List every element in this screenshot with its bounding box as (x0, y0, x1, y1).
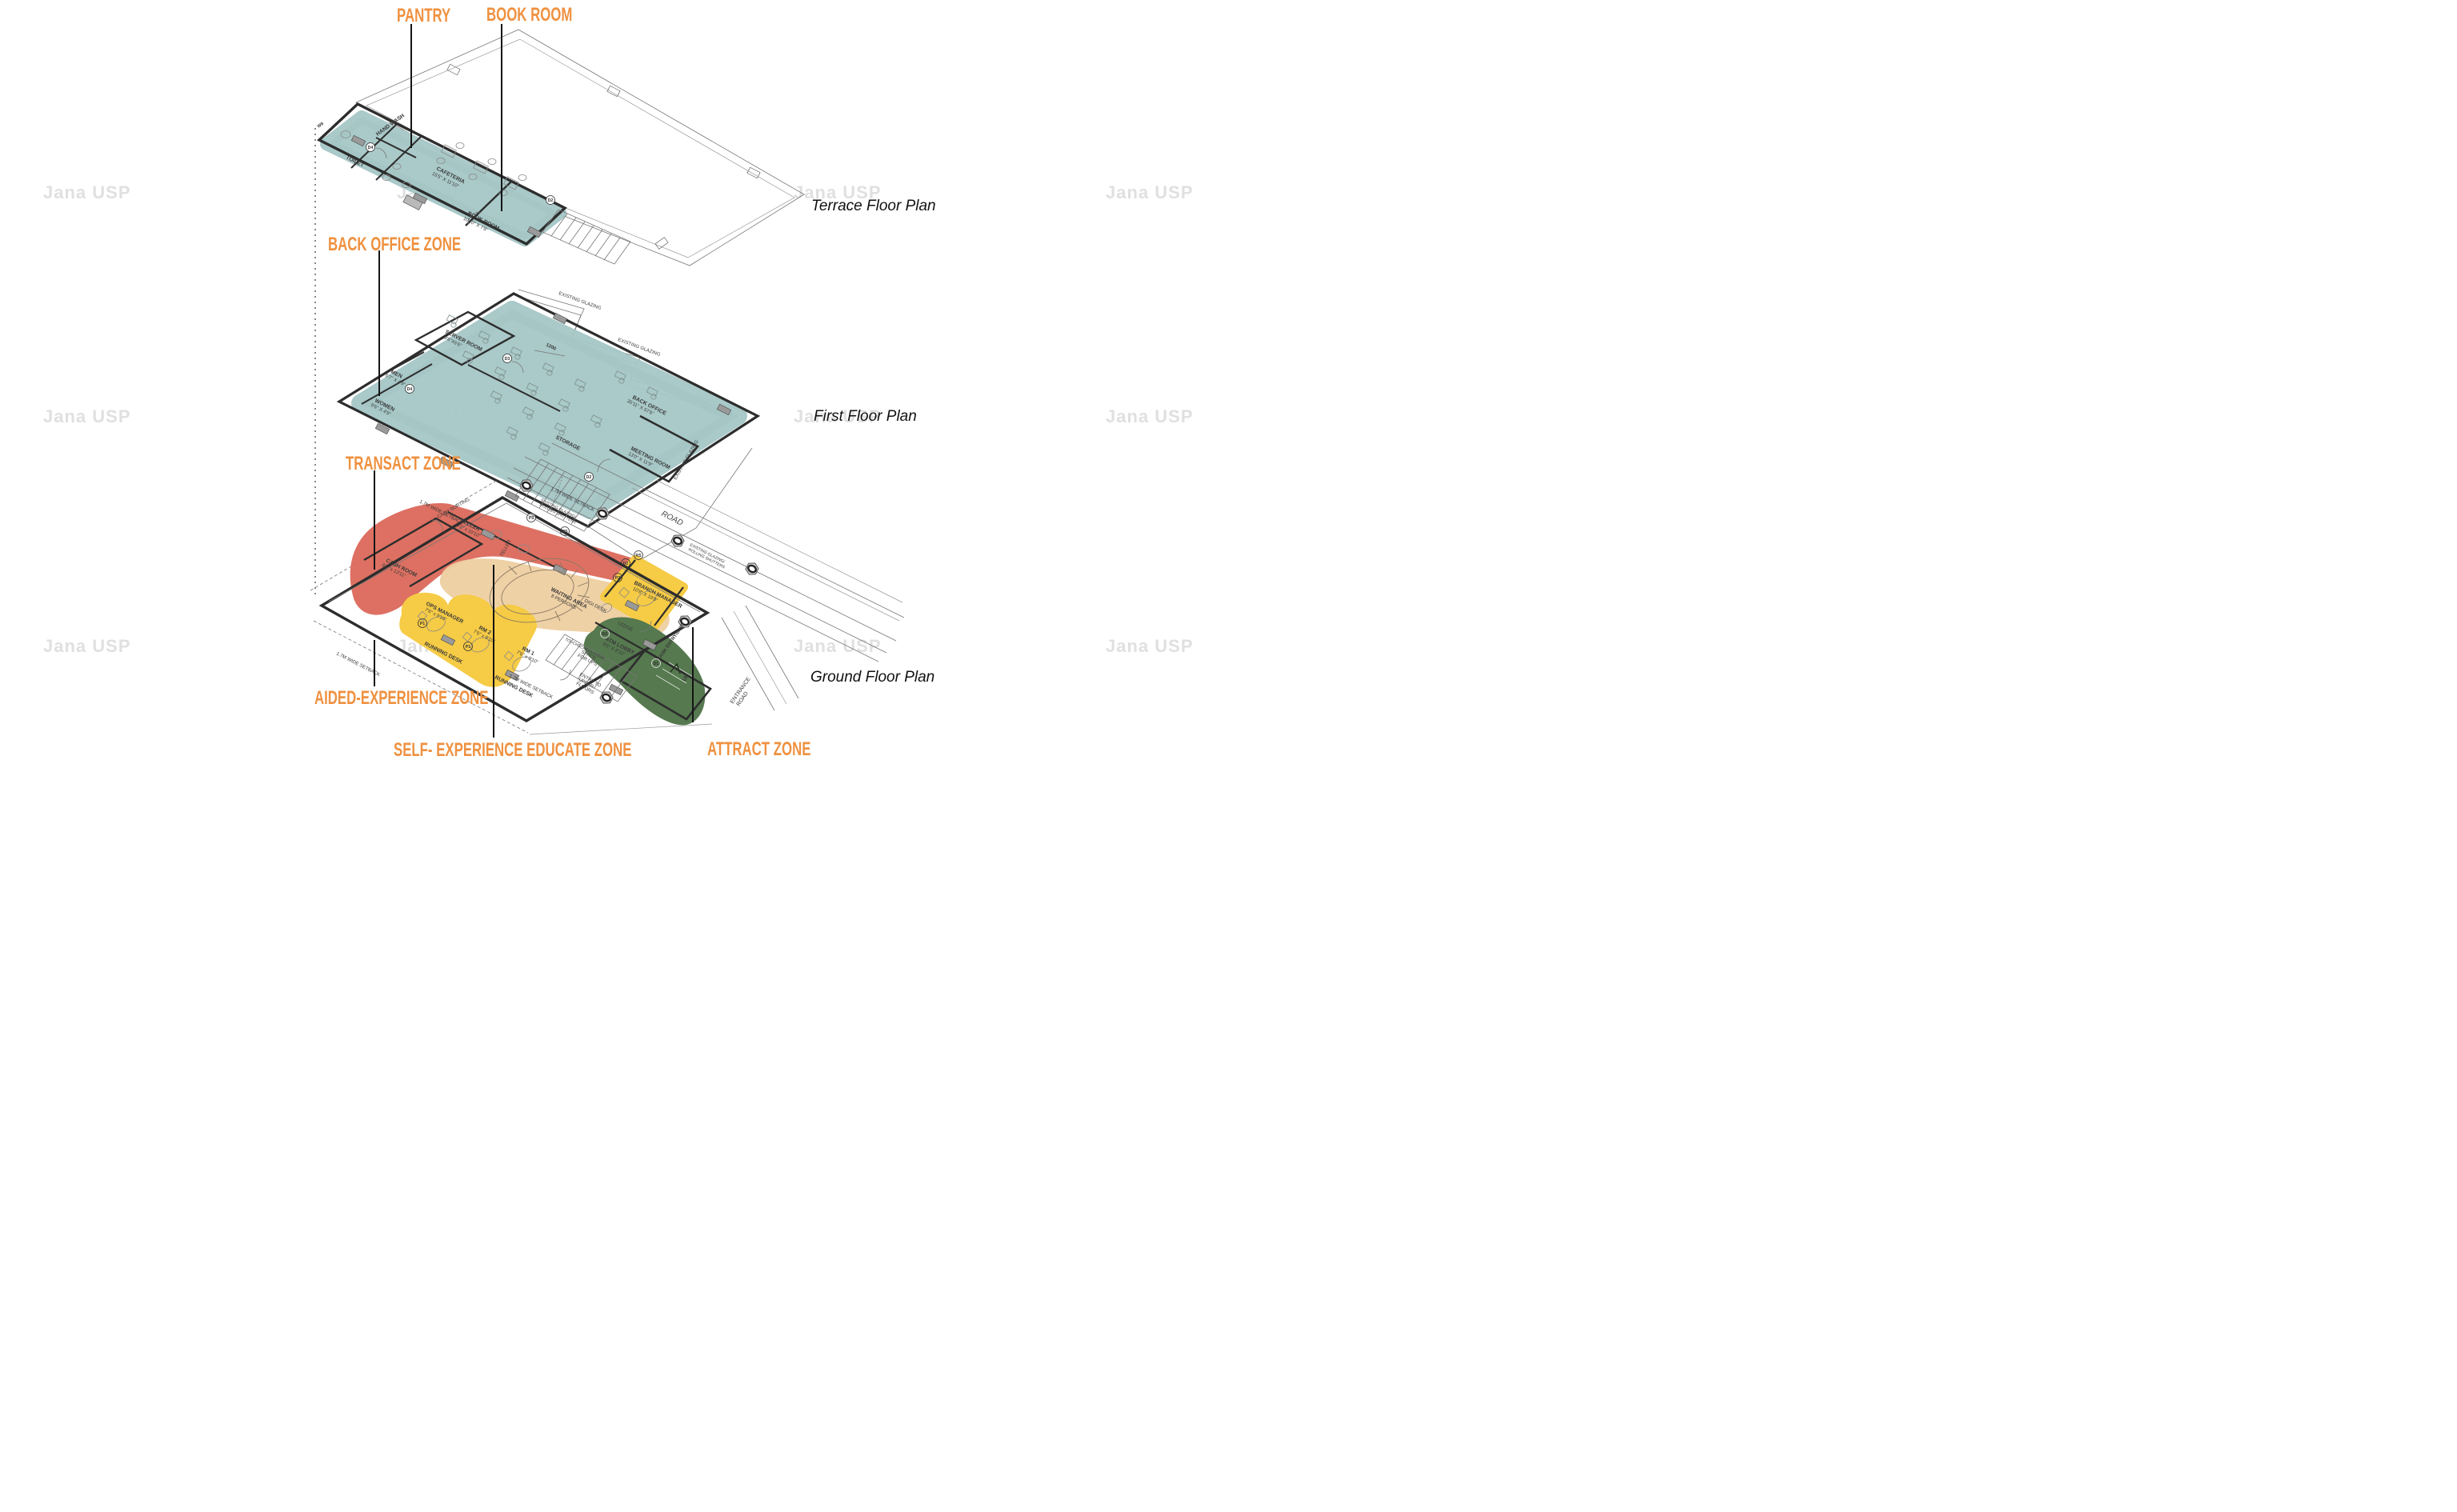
ground-floor-title: Ground Floor Plan (810, 669, 934, 686)
terrace-floor-title: Terrace Floor Plan (811, 198, 936, 215)
door-tag-d4: D4 (366, 143, 375, 152)
floor-plan-canvas: HAND WASH TOILET W8 CAFETERIA 15'5" X 11… (0, 0, 1229, 756)
diagram-stage: Jana USP Jana USP Jana USP Jana USP Jana… (0, 0, 1229, 756)
entry-upper-label: ENTRY TO UPPER FLOORS (574, 673, 602, 698)
glazing-shutter-note: EXISTING GLAZING/ ROLLING SHUTTERS (686, 542, 728, 570)
svg-text:D4: D4 (407, 387, 413, 392)
svg-text:D2: D2 (623, 562, 629, 566)
door-tag-d4: D4 (406, 385, 414, 394)
entrance-road-label: ENTRANCE ROAD (730, 676, 758, 708)
svg-text:D2: D2 (548, 198, 554, 203)
self-experience-zone-label: SELF- EXPERIENCE EDUCATE ZONE (394, 739, 631, 756)
svg-text:D3: D3 (505, 357, 510, 362)
svg-text:D2: D2 (586, 475, 592, 480)
aided-zone-label: AIDED-EXPERIENCE ZONE (314, 687, 489, 710)
attract-zone-label: ATTRACT ZONE (707, 738, 810, 756)
svg-text:RS: RS (602, 632, 608, 637)
glazing-note: EXISTING GLAZING (558, 291, 602, 311)
book-room-zone-label: BOOK ROOM (486, 4, 572, 26)
svg-text:RS: RS (562, 530, 568, 534)
svg-text:P3: P3 (529, 516, 534, 521)
first-floor-title: First Floor Plan (814, 408, 917, 426)
pantry-zone-label: PANTRY (397, 5, 450, 27)
svg-text:D1: D1 (654, 662, 659, 666)
terrace-floor-plan: HAND WASH TOILET W8 CAFETERIA 15'5" X 11… (317, 24, 804, 266)
window-tag: W8 (317, 122, 325, 130)
svg-text:P1: P1 (420, 622, 425, 626)
transact-zone-label: TRANSACT ZONE (346, 453, 461, 475)
door-tag-d2: D2 (585, 473, 594, 482)
door-tag-d3: D3 (503, 354, 512, 363)
door-tag-d2: D2 (546, 196, 555, 205)
svg-text:D4: D4 (368, 146, 374, 150)
aided-zone-shape (399, 593, 537, 687)
svg-text:P1: P1 (466, 645, 470, 650)
svg-text:P2: P2 (615, 576, 620, 581)
svg-text:RS: RS (635, 554, 642, 558)
back-office-zone-label: BACK OFFICE ZONE (328, 234, 461, 256)
